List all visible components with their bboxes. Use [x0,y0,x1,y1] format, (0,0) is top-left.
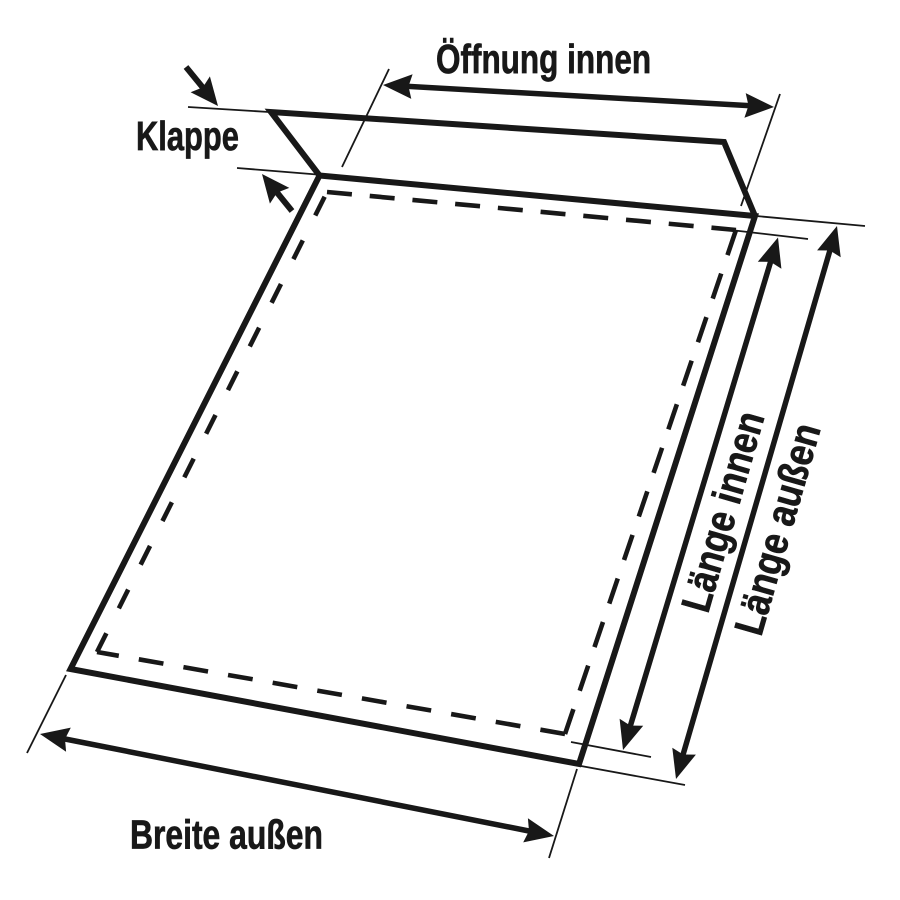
svg-text:Klappe: Klappe [136,113,239,159]
svg-text:Breite außen: Breite außen [130,812,323,858]
svg-text:Öffnung innen: Öffnung innen [436,36,651,82]
